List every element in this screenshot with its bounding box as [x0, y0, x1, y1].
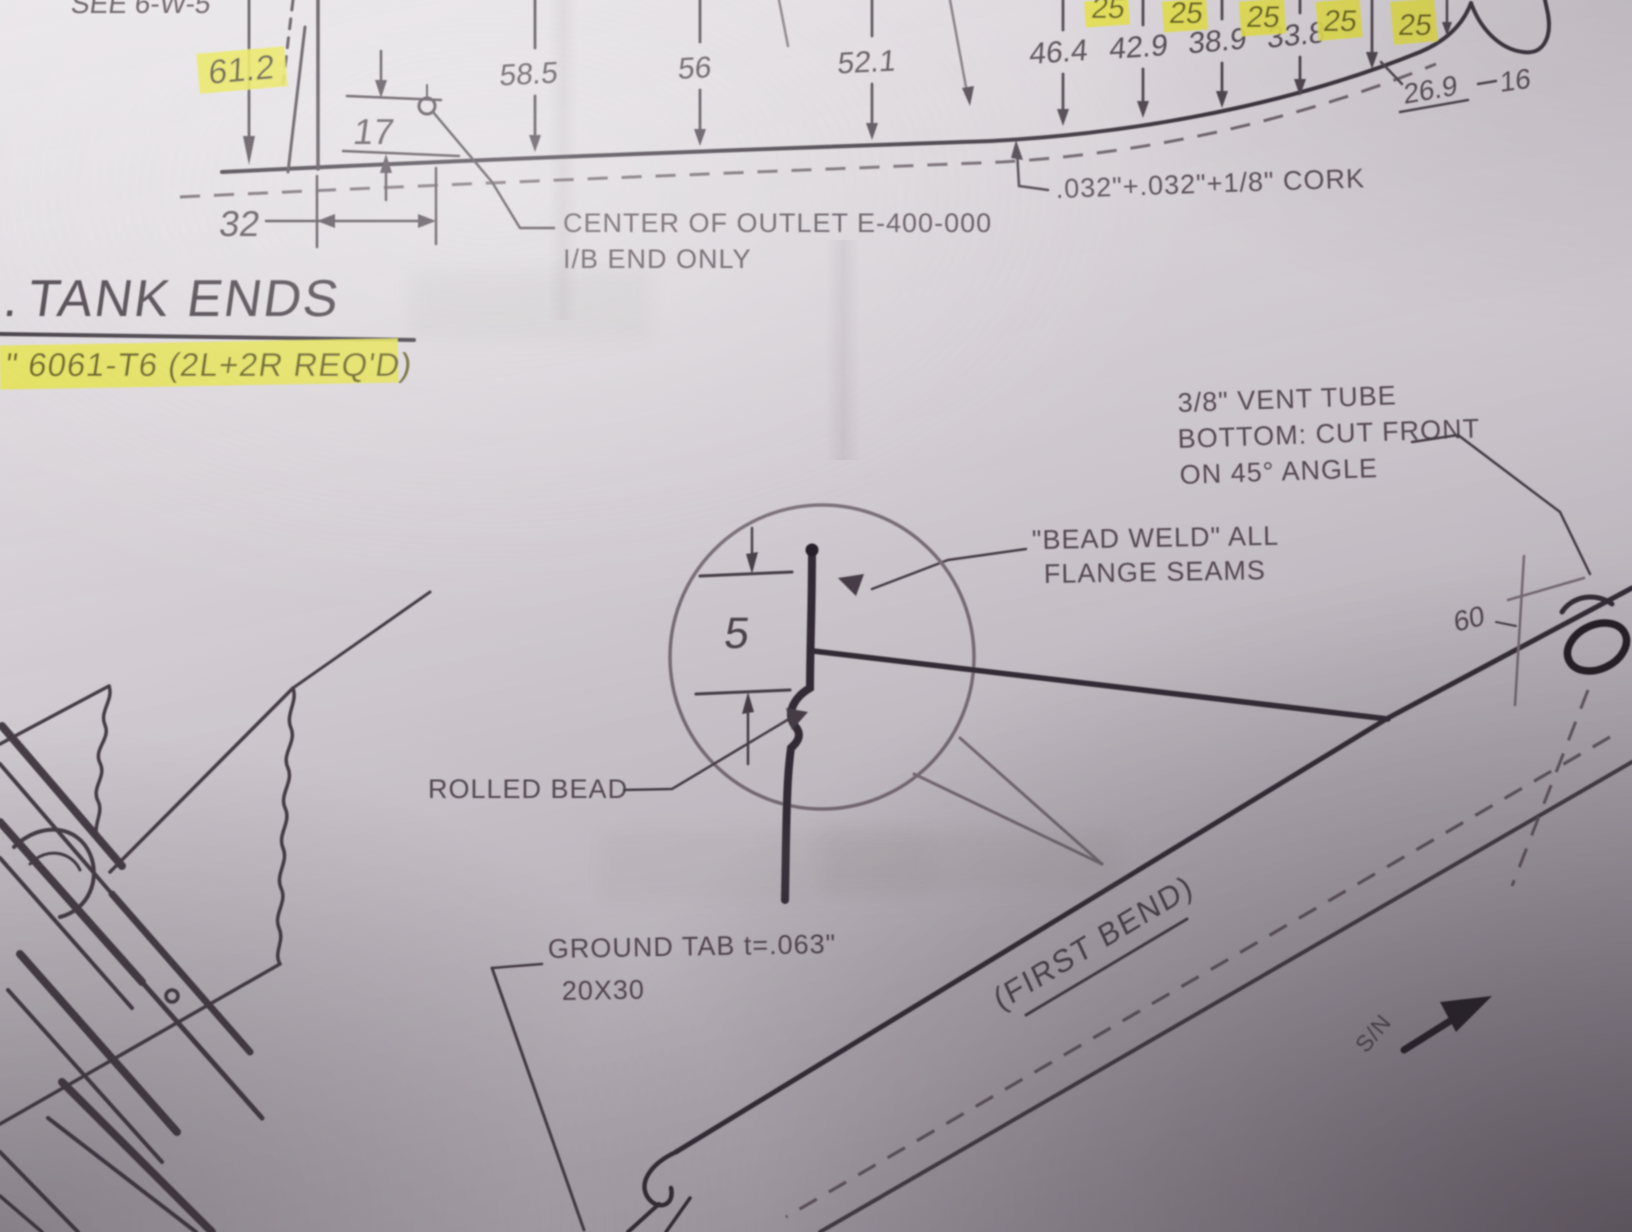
balloon-tail [914, 774, 1102, 864]
first-bend-panel: (FIRST BEND) S/N [628, 588, 1632, 1232]
dim-60-label: 60 [1452, 599, 1485, 638]
station-dim-52-1: 52.1 [836, 0, 897, 140]
drawing-content: 61.2 SEE 6-W-5 32 17 CENTER OF OUTLET E [0, 0, 1632, 1232]
dim-61-2-label: 61.2 [208, 48, 276, 92]
top-leader [779, 0, 788, 46]
arrowhead [418, 214, 436, 228]
station-label: 42.9 [1108, 29, 1169, 66]
flap-edge [110, 688, 293, 872]
stiffener-bar [62, 1082, 212, 1232]
arrowhead [838, 574, 864, 596]
bead-weld-line2: FLANGE SEAMS [1044, 555, 1267, 589]
arrowhead [694, 129, 706, 146]
vent-note-line2: BOTTOM: CUT FRONT [1177, 413, 1480, 454]
isometric-part-sketch [0, 592, 430, 1232]
arrowhead [375, 80, 387, 98]
panel-lower-edge [820, 762, 1632, 1232]
chain-dim-label: 25 [1321, 5, 1359, 38]
stiffener-bar [8, 990, 162, 1162]
section-title: TANK ENDS [24, 270, 344, 328]
material-spec: " 6061-T6 (2L+2R REQ'D) [3, 347, 415, 384]
station-label: 46.4 [1028, 34, 1089, 71]
leader [1019, 186, 1048, 190]
arrowhead [1137, 101, 1149, 118]
left-slant-line [288, 27, 305, 172]
bead-weld-dot [806, 544, 819, 557]
skin-seam-line [813, 651, 1388, 719]
station-label: 58.5 [498, 56, 559, 92]
arrowhead [866, 123, 878, 140]
vent-note-line3: ON 45° ANGLE [1179, 453, 1378, 490]
stiffener-bar [0, 858, 132, 1008]
dim-61-2-arrowhead [243, 136, 255, 165]
edge-line [628, 1204, 659, 1232]
arrowhead [317, 214, 335, 228]
tick [1508, 578, 1584, 600]
detail-balloon: 5 [670, 505, 1388, 900]
bead-weld-leader [872, 549, 1026, 589]
tank-profile-end-cap [1471, 0, 1549, 52]
arrowhead [1366, 52, 1378, 69]
station-label: 52.1 [836, 44, 897, 80]
rolled-bead-leader [624, 716, 794, 790]
panel-edge-line [676, 588, 1632, 1152]
arrowhead [1216, 91, 1228, 108]
top-leader [950, 0, 968, 98]
hidden-line [1512, 690, 1588, 886]
dim-16-label: 16 [1500, 63, 1531, 98]
bend-dashed-line [786, 737, 1610, 1217]
leader [492, 968, 584, 1230]
bead-weld-line1: "BEAD WELD" ALL [1032, 521, 1280, 555]
arrowhead [742, 692, 754, 714]
break-line [278, 688, 295, 964]
arrowhead [962, 86, 974, 106]
see-note: SEE 6-W-5 [69, 0, 213, 19]
outlet-note-line2: I/B END ONLY [563, 244, 752, 274]
direction-arrow-shaft [1404, 1016, 1458, 1050]
flange-lip-arc [14, 830, 94, 917]
title-block: . TANK ENDS " 6061-T6 (2L+2R REQ'D) [0, 270, 415, 389]
balloon-tail [960, 738, 1102, 864]
arrowhead [529, 135, 541, 152]
vent-leader [1412, 435, 1590, 574]
bead-weld-note: "BEAD WELD" ALL FLANGE SEAMS [838, 521, 1279, 596]
ext-line [696, 690, 790, 694]
ground-tab-line1: GROUND TAB t=.063" [548, 929, 837, 964]
vent-note-line1: 3/8" VENT TUBE [1177, 380, 1397, 418]
corner-edge [0, 1196, 42, 1232]
stiffener-bar [48, 1118, 196, 1232]
leader [492, 964, 542, 968]
flap-edge [0, 686, 109, 744]
arrowhead [1057, 109, 1069, 126]
ext-line [700, 572, 792, 576]
chain-dim-label: 25 [1089, 0, 1127, 25]
flap-bottom-edge [0, 964, 280, 1124]
dim-5-label: 5 [721, 609, 752, 658]
station-dim-58-5: 58.5 [498, 0, 559, 152]
dim-16: 16 [1478, 63, 1531, 98]
dim-17-label: 17 [351, 111, 397, 152]
station-dim-46-4: 46.4 [1028, 0, 1089, 126]
ground-tab-line2: 20X30 [562, 975, 646, 1006]
corner-edge [0, 1152, 78, 1232]
dim-61-2: 61.2 [196, 46, 287, 94]
flap-edge-ext [293, 592, 430, 688]
title-rule [0, 334, 414, 340]
title-partial-prefix: . [0, 270, 25, 328]
sn-label: S/N [1350, 1009, 1396, 1057]
direction-arrow-head [1440, 996, 1492, 1032]
rolled-edge-hook [644, 1152, 676, 1205]
center-line [1515, 556, 1524, 705]
arrowhead [746, 552, 758, 574]
cork-callout: .032"+.032"+1/8" CORK [1011, 140, 1365, 204]
leader [1496, 622, 1516, 626]
flange-section-line [785, 549, 812, 900]
vent-tube-end: 60 [1452, 556, 1632, 886]
dim-32-label: 32 [217, 203, 263, 244]
rolled-bead-label: ROLLED BEAD [428, 774, 628, 804]
break-line [96, 686, 110, 838]
rivet-hole [166, 990, 178, 1002]
chain-dim-label: 25 [1167, 0, 1205, 30]
ground-tab-callout: GROUND TAB t=.063" 20X30 [492, 929, 836, 1230]
dim-32: 32 [217, 168, 436, 247]
outlet-note-line1: CENTER OF OUTLET E-400-000 [563, 208, 992, 238]
leader [1381, 62, 1402, 84]
leader [1478, 81, 1496, 84]
chain-dim-label: 25 [1396, 9, 1434, 42]
blueprint-photo: 61.2 SEE 6-W-5 32 17 CENTER OF OUTLET E [0, 0, 1632, 1232]
chain-dim-label: 25 [1244, 1, 1282, 34]
cork-note: .032"+.032"+1/8" CORK [1055, 163, 1365, 204]
station-label: 56 [677, 51, 713, 86]
stiffener-bar [20, 954, 177, 1132]
station-dim-56: 56 [677, 0, 713, 146]
drawing-linework: 61.2 SEE 6-W-5 32 17 CENTER OF OUTLET E [0, 0, 1632, 1232]
